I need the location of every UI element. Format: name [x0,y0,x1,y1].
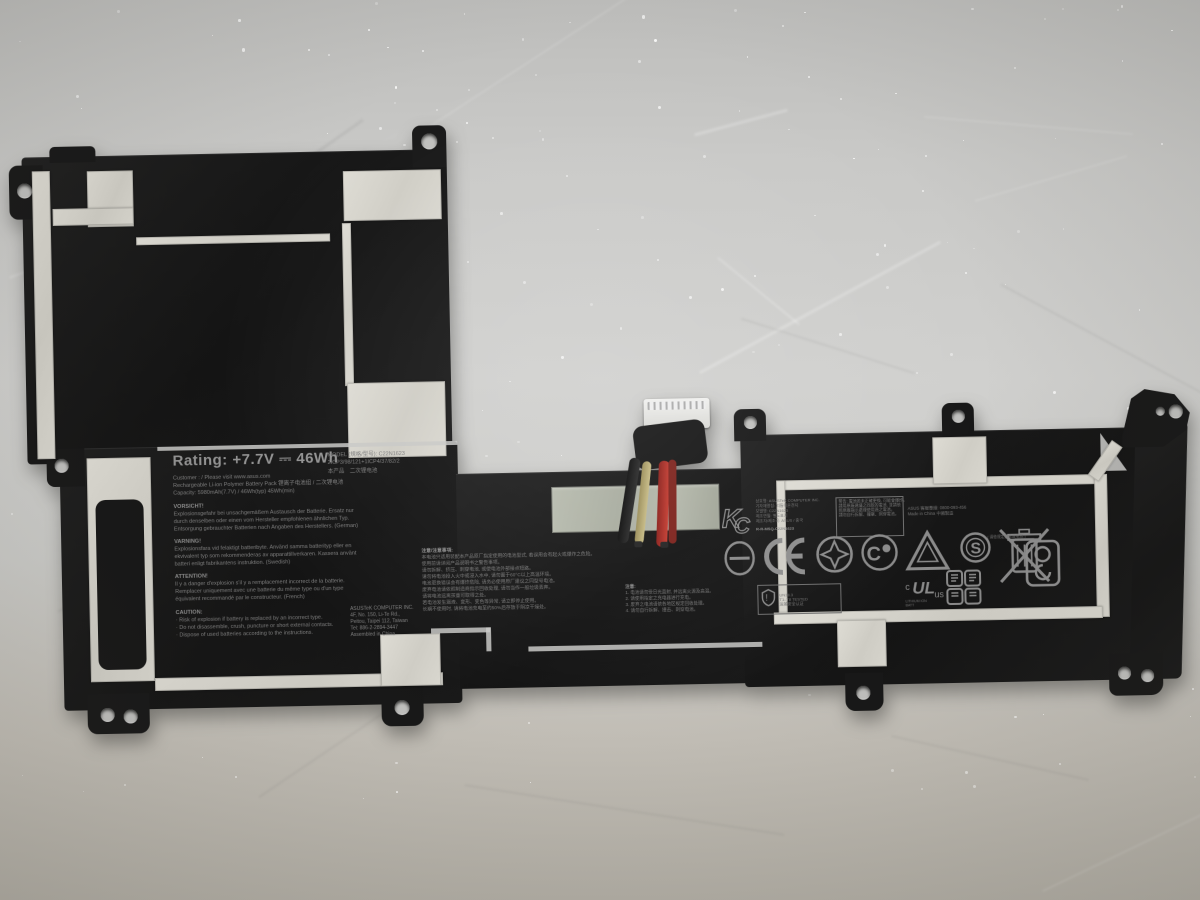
wire-red-dark [668,460,676,544]
foil-sparkle [569,22,570,23]
foil-sparkle [1117,9,1119,11]
foil-sparkle [522,38,525,41]
foil-sparkle [395,86,398,89]
foil-sparkle [308,49,310,51]
connector-pins [647,401,705,410]
foil-sparkle [642,15,645,18]
kc-reg-block: 상호명: ASUSTeK COMPUTER INC. 기자재명칭: 리튬이온전지… [755,497,841,532]
label-small-print: Customer : / Please visit www.asus.com R… [173,469,456,642]
shield-box: ! UN38.3 T1–T8 TESTED 运输安全认证 [757,583,842,615]
foil-sparkle [422,50,424,52]
round-cert-mark-icon: C [858,530,901,575]
foil-sparkle [734,9,737,12]
tape-patch-bottom-left [380,633,441,686]
foil-sparkle [747,56,749,58]
foil-sparkle [76,95,79,98]
foil-sparkle [808,76,810,78]
foil-sparkle [840,98,842,100]
foil-sparkle [368,29,370,31]
foil-crease [464,785,784,836]
foil-sparkle [1122,60,1124,62]
tape-l-arm [52,207,133,226]
foil-sparkle [1192,688,1195,691]
foil-sparkle [530,782,531,783]
foil-sparkle [1121,5,1124,8]
foil-sparkle [117,10,120,13]
foil-sparkle [83,791,84,792]
foil-sparkle [1059,763,1061,765]
warning-triangle-icon [904,529,951,572]
tape-patch-top-right [932,436,987,484]
rating-text: Rating: +7.7V ⎓ 46Wh [172,449,338,469]
cross-circle-mark-icon [814,533,855,576]
foil-sparkle [81,108,82,109]
maker-line: Assembled in China [350,630,414,638]
foil-sparkle [658,106,661,109]
battery-recycle-mark-icon [1024,539,1061,588]
tab-top-lip [49,146,95,163]
tape-patch-bottom-right [837,619,887,667]
foil-sparkle [238,19,241,22]
foil-sparkle [212,35,213,36]
cn-warning-block: 注意/注意事項: 本电池只适用装配本产品原厂指定使用的电池型式, 若误用会有起火… [421,545,577,613]
foil-sparkle [739,110,741,112]
foil-sparkle [782,25,784,27]
box-right-text: ASUS 客服專線: 0800-093-456 Made in China 中國… [908,504,1008,517]
foil-crease [891,735,1089,781]
foil-sparkle [973,785,976,788]
tape-patch-topright [343,169,442,221]
tape-black-inset [95,499,146,670]
battery-right-edge [1130,421,1188,679]
svg-text:!: ! [765,592,768,602]
foil-sparkle [804,12,805,13]
foil-sparkle [11,513,13,515]
svg-text:c: c [905,582,910,592]
foil-sparkle [891,769,894,772]
ul-caption-line: BATT [906,603,946,608]
foil-sparkle [235,776,237,778]
ce-mark-icon [762,536,809,577]
foil-sparkle [654,39,657,42]
foil-sparkle [466,122,468,124]
step-line-b [486,627,491,651]
kc-mark-icon: K C [721,497,752,544]
tab-bottom-left [87,693,150,734]
foil-sparkle [971,8,973,10]
photo-stage: Rating: +7.7V ⎓ 46Wh MODEL (規格/型号): C22N… [0,0,1200,900]
foil-sparkle [638,60,641,63]
foil-sparkle [468,89,470,91]
foil-sparkle [1062,8,1064,10]
foil-crease [423,0,718,131]
foil-sparkle [436,109,438,111]
foil-sparkle [375,2,378,5]
foil-sparkle [895,93,897,95]
wire-tip-a [634,541,642,547]
foil-sparkle [242,48,245,51]
foil-sparkle [328,54,330,56]
laptop-battery: Rating: +7.7V ⎓ 46Wh MODEL (規格/型号): C22N… [16,116,1188,739]
oval-cert-mark-icon [721,541,758,580]
maker-column: ASUSTeK COMPUTER INC. 4F, No. 150, Li-Te… [350,604,414,638]
foil-sparkle [396,791,398,793]
svg-text:us: us [934,589,943,599]
foil-sparkle [124,784,126,786]
svg-text:C: C [734,513,751,538]
shield-icon: ! [761,588,775,611]
foil-sparkle [921,788,923,790]
foil-sparkle [464,13,465,14]
wire-tip-b [660,542,668,548]
numbered-note-block: 注意: 1. 电池请勿受日光直射, 并远离火源及高温。 2. 请使用指定之充电器… [625,581,771,614]
foil-sparkle [1190,716,1191,717]
foil-sparkle [1044,18,1047,21]
foil-sparkle [395,762,398,765]
foil-sparkle [535,74,537,76]
foil-sparkle [394,102,396,104]
caution-column: CAUTION: · Risk of explosion if battery … [176,606,334,642]
foil-sparkle [1194,776,1196,778]
cn-box-line: 請勿自行拆解、撞擊、刺穿電池。 [839,511,903,517]
foil-sparkle [19,41,21,43]
shield-box-line: 运输安全认证 [780,601,811,606]
tab-bottom-right [1109,653,1164,696]
foil-sparkle [22,775,23,776]
foil-sparkle [1014,67,1016,69]
foil-sparkle [202,757,204,759]
foil-sparkle [965,771,968,774]
kc-reg-line: 제조자/제조국: ASUS / 중국 [756,517,841,524]
svg-text:S: S [970,540,981,557]
svg-text:UL: UL [912,578,935,597]
svg-text:C: C [866,543,881,565]
foil-sparkle [1171,30,1172,31]
foil-crease [1042,726,1200,892]
double-box-mark-icon [945,568,984,607]
foil-sparkle [379,127,382,130]
ul-caption: LITHIUM ION BATT [906,599,946,608]
foil-sparkle [363,798,364,799]
foil-sparkle [387,47,388,48]
